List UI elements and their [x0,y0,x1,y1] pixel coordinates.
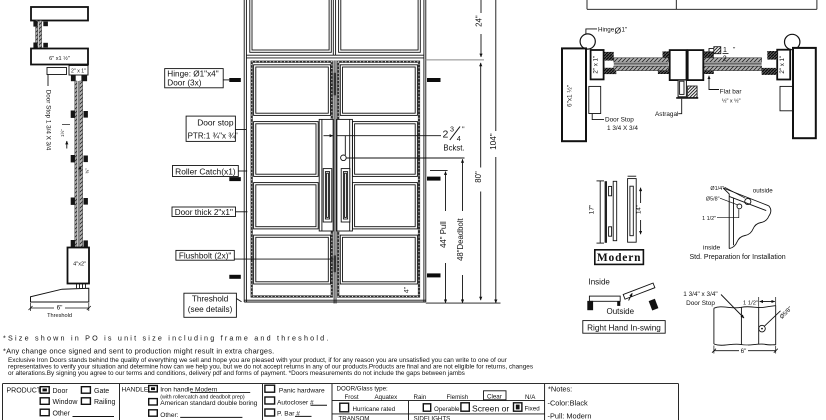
svg-text:2" x 1": 2" x 1" [779,56,786,74]
svg-text:Door (3x): Door (3x) [167,79,201,88]
svg-text:Flat bar: Flat bar [720,89,743,96]
svg-text:inside: inside [703,245,721,252]
svg-text:1 3/4" x 3/4": 1 3/4" x 3/4" [683,291,717,298]
svg-text:6": 6" [741,348,747,355]
svg-text:2: 2 [723,56,727,63]
svg-text:*Notes:: *Notes: [548,385,572,394]
svg-text:HANDLE:: HANDLE: [122,386,151,393]
svg-text:Window: Window [53,399,79,406]
svg-text:Ø: Ø [615,26,622,36]
svg-text:6"x1 ½": 6"x1 ½" [566,85,574,107]
svg-text:¾": ¾" [85,168,90,174]
svg-text:1": 1" [622,27,628,34]
svg-text:Railing: Railing [94,399,116,406]
svg-text:Right Hand In-swing: Right Hand In-swing [587,323,661,332]
svg-text:DOOR/Glass type:: DOOR/Glass type: [337,386,389,393]
svg-text:Flushbolt (2x)": Flushbolt (2x)" [179,251,232,260]
svg-text:Hurricane rated: Hurricane rated [353,406,396,413]
svg-text:N/A: N/A [525,394,536,401]
svg-text:Door Stop: Door Stop [605,117,634,124]
svg-text:17": 17" [589,204,596,214]
svg-text:Aquatex: Aquatex [375,394,399,401]
svg-text:6": 6" [57,304,63,311]
svg-text:Threshold: Threshold [47,313,72,319]
svg-text:PTR:1 ¾"x ¾": PTR:1 ¾"x ¾" [188,132,238,141]
svg-text:4"x2": 4"x2" [73,261,86,267]
svg-text:Threshold: Threshold [192,294,229,303]
svg-text:Other: Other [53,410,71,417]
svg-text:Hinge: Ø1"x4": Hinge: Ø1"x4" [167,69,218,78]
svg-text:Modern: Modern [597,252,641,264]
svg-text:Door Stop 1 3/4 X 3/4: Door Stop 1 3/4 X 3/4 [45,90,52,151]
svg-text:80": 80" [474,171,483,183]
svg-text:Ø5/8": Ø5/8" [706,197,720,203]
svg-text:": " [462,125,465,134]
svg-text:Door stop: Door stop [197,118,234,128]
svg-text:-Color:Black: -Color:Black [548,399,589,408]
svg-text:48"Deadbolt: 48"Deadbolt [456,217,465,260]
svg-text:SIDELIGHTS: SIDELIGHTS [414,415,451,420]
svg-text:-Pull: Modern: -Pull: Modern [548,411,592,420]
svg-text:Roller Catch(x1): Roller Catch(x1) [175,167,236,177]
svg-text:outside: outside [753,188,774,195]
svg-text:Hinge: Hinge [598,27,615,34]
svg-text:4": 4" [403,286,410,293]
svg-text:or alterations.By signing you: or alterations.By signing you agree to o… [8,370,465,377]
svg-text:1½": 1½" [59,129,65,137]
svg-text:*Size shown in PO is unit size: *Size shown in PO is unit size including… [3,334,331,343]
svg-text:2" x 1": 2" x 1" [71,69,86,75]
svg-text:14": 14" [636,205,643,214]
svg-text:PRODUCT:: PRODUCT: [7,387,43,394]
svg-text:1: 1 [723,47,727,54]
svg-text:1 1/2": 1 1/2" [743,301,758,307]
svg-text:Autocloser #: Autocloser # [277,399,314,406]
svg-text:4: 4 [457,134,461,143]
svg-text:Operable: Operable [434,406,460,413]
svg-text:*Any change once signed and se: *Any change once signed and sent to prod… [3,347,274,356]
svg-text:Other:: Other: [160,412,178,419]
svg-text:Inside: Inside [589,278,611,287]
svg-text:Flemish: Flemish [447,394,469,401]
svg-text:44" Pull: 44" Pull [439,221,448,248]
svg-text:½" x ½": ½" x ½" [722,98,741,105]
svg-text:TRANSOM: TRANSOM [339,415,370,420]
svg-text:Door Stop: Door Stop [686,300,715,307]
svg-text:24": 24" [474,15,483,27]
svg-text:2" x 1": 2" x 1" [592,56,599,74]
svg-text:Door: Door [53,388,69,395]
svg-text:Screen or: Screen or [472,404,509,414]
svg-text:Gate: Gate [94,388,109,395]
svg-text:American standard double borin: American standard double boring [160,400,257,407]
svg-text:104": 104" [489,133,498,150]
svg-text:Astragal: Astragal [655,111,678,118]
svg-text:1 1/2": 1 1/2" [702,216,716,222]
svg-text:Rain: Rain [414,394,427,401]
svg-text:Clear: Clear [487,393,502,400]
svg-text:Panic hardware: Panic hardware [279,387,325,394]
svg-text:6" x1 ½": 6" x1 ½" [49,55,70,62]
svg-text:Std. Preparation for Installat: Std. Preparation for Installation [690,254,786,261]
svg-text:1 3/4 X 3/4: 1 3/4 X 3/4 [607,125,638,132]
svg-text:2: 2 [443,129,449,141]
svg-text:(see details): (see details) [188,305,233,314]
svg-text:3: 3 [450,125,454,134]
svg-text:Door thick 2"x1": Door thick 2"x1" [175,208,233,217]
svg-text:Bckst.: Bckst. [443,144,464,153]
svg-text:Outside: Outside [607,307,635,316]
svg-text:Frost: Frost [345,394,359,401]
svg-text:Fixed: Fixed [525,406,541,413]
svg-text:Ø1/4": Ø1/4" [710,186,724,192]
